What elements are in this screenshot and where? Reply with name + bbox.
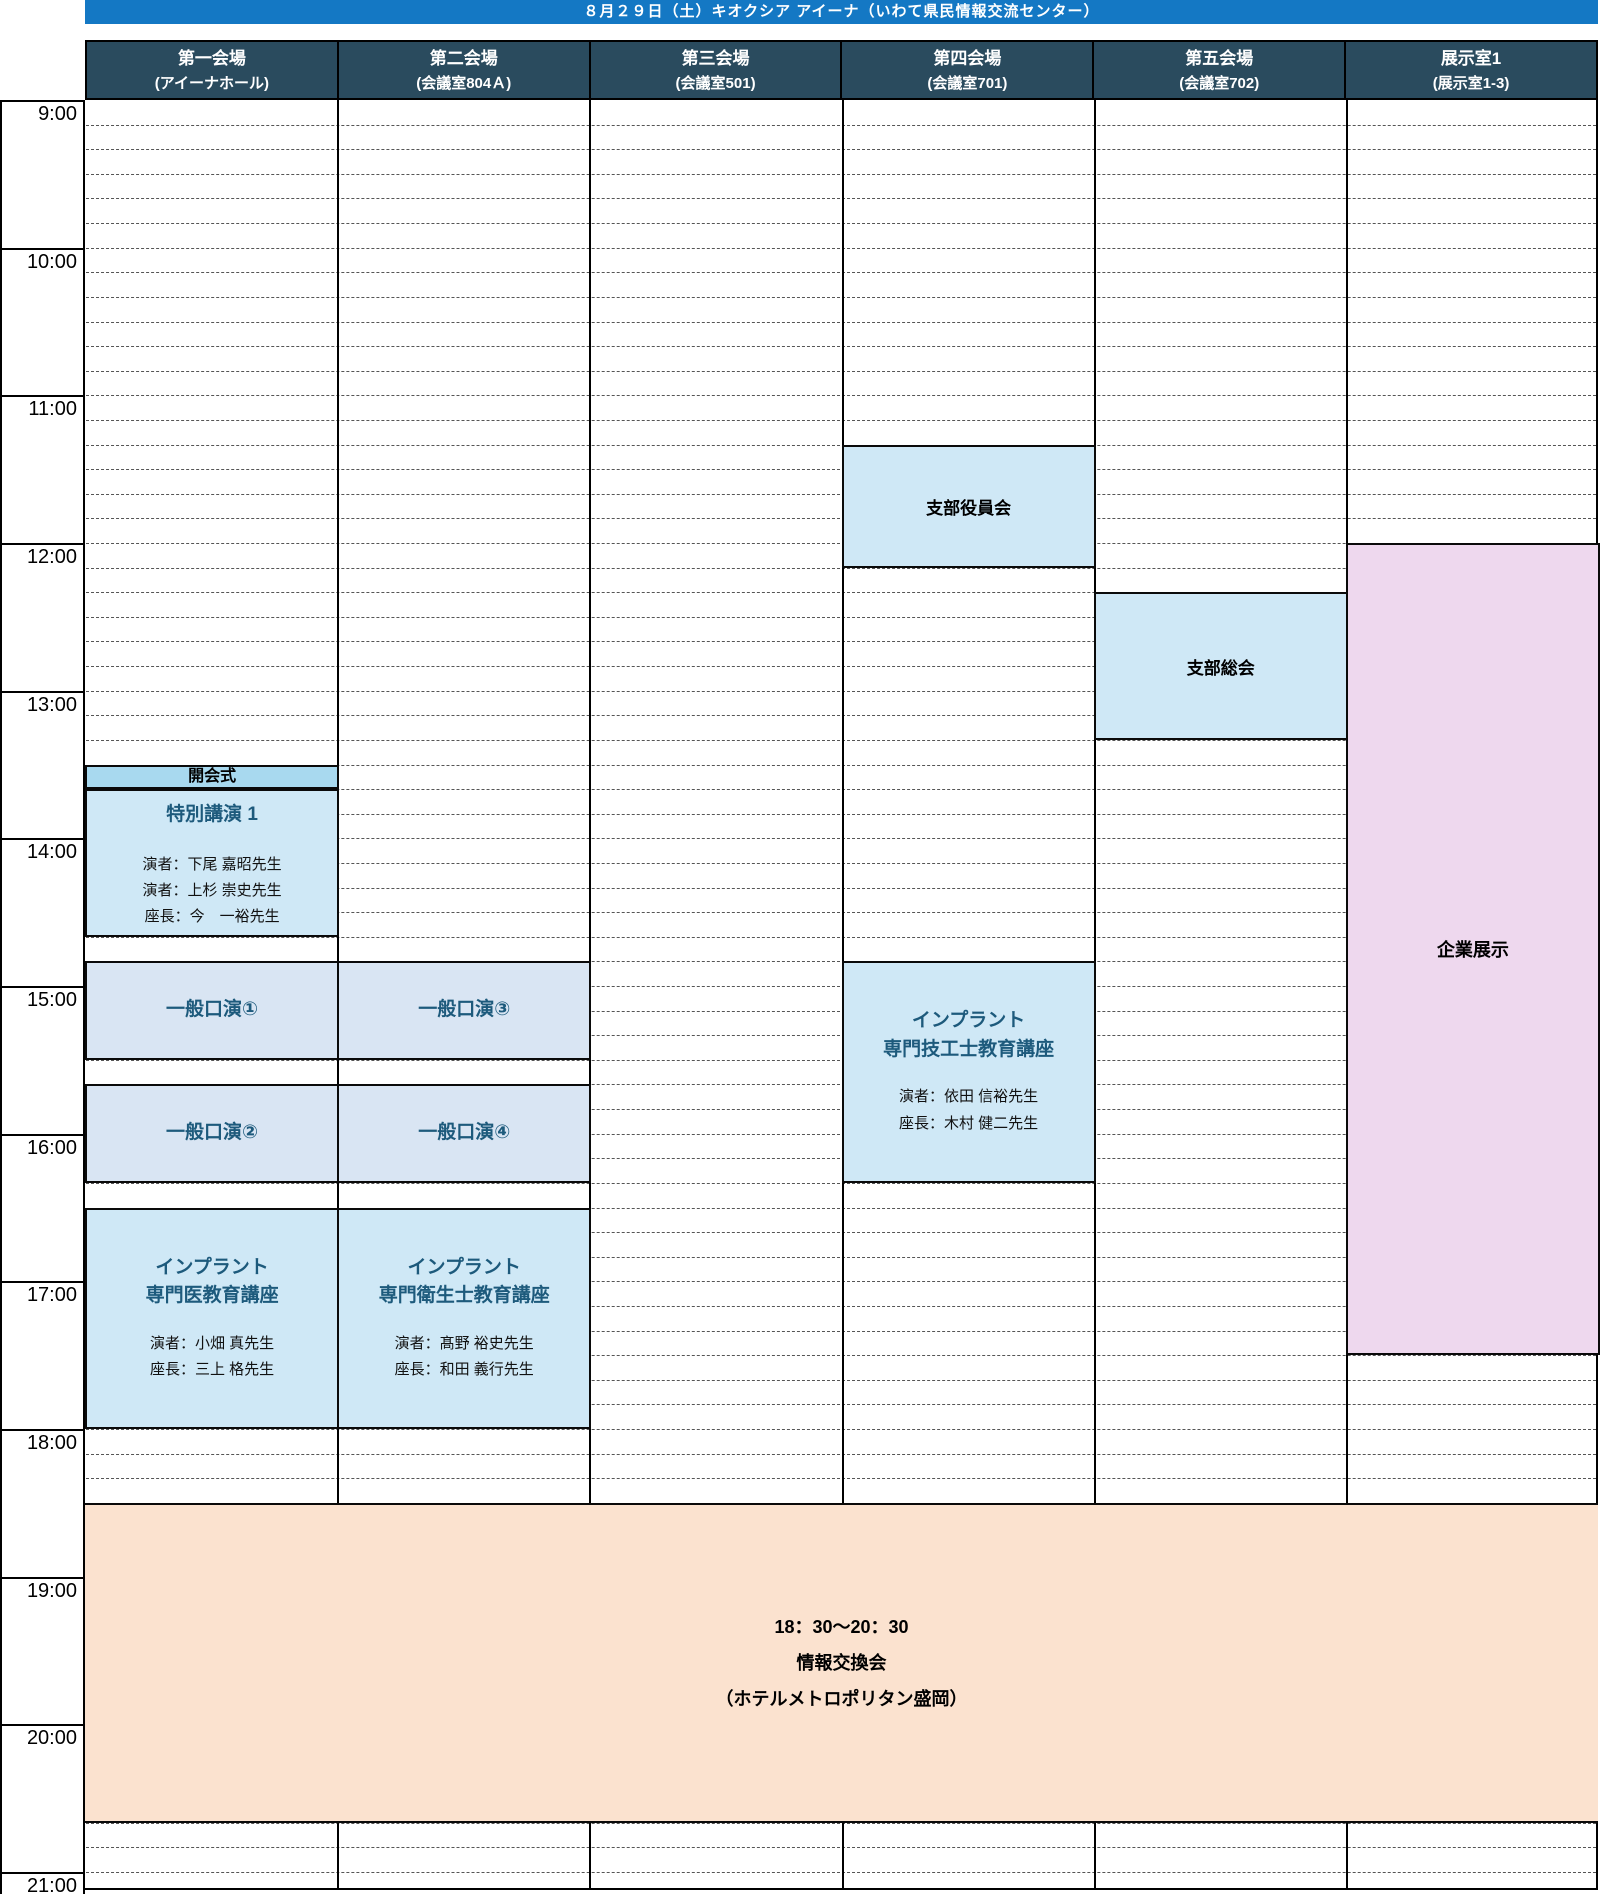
event-title-line1: インプラント bbox=[379, 1254, 550, 1283]
time-cell: 16:00 bbox=[0, 1134, 85, 1282]
time-cell: 13:00 bbox=[0, 691, 85, 839]
event-title: 一般口演② bbox=[166, 1119, 258, 1148]
venue-name: 第四会場 bbox=[842, 46, 1092, 72]
venue-room: (展示室1-3) bbox=[1346, 72, 1596, 96]
time-cell: 15:00 bbox=[0, 986, 85, 1134]
event-branch-board-meeting: 支部役員会 bbox=[842, 445, 1096, 568]
event-title: 一般口演④ bbox=[418, 1119, 510, 1148]
event-title-line2: 専門技工士教育講座 bbox=[883, 1036, 1054, 1065]
speaker-line: 演者：小畑 真先生 bbox=[150, 1331, 274, 1357]
event-title: インプラント 専門医教育講座 bbox=[146, 1254, 279, 1311]
event-title: 情報交換会 bbox=[797, 1645, 887, 1681]
venue-header-2: 第二会場 (会議室804Ａ) bbox=[339, 42, 591, 98]
venue-room: (会議室701) bbox=[842, 72, 1092, 96]
event-place: （ホテルメトロポリタン盛岡） bbox=[716, 1681, 968, 1717]
event-special-lecture-1: 特別講演 1 演者：下尾 嘉昭先生 演者：上杉 崇史先生 座長：今 一裕先生 bbox=[85, 789, 339, 937]
time-label: 19:00 bbox=[27, 1580, 77, 1602]
event-title-line1: インプラント bbox=[146, 1254, 279, 1283]
event-title: 開会式 bbox=[188, 767, 236, 787]
event-speakers: 演者：小畑 真先生 座長：三上 格先生 bbox=[150, 1331, 274, 1384]
venue-header-3: 第三会場 (会議室501) bbox=[591, 42, 843, 98]
venue-header-5: 第五会場 (会議室702) bbox=[1094, 42, 1346, 98]
time-cell: 14:00 bbox=[0, 838, 85, 986]
time-cell: 18:00 bbox=[0, 1429, 85, 1577]
event-title: 一般口演③ bbox=[418, 996, 510, 1025]
event-title: インプラント 専門衛生士教育講座 bbox=[379, 1254, 550, 1311]
venue-name: 第五会場 bbox=[1094, 46, 1344, 72]
event-title: 支部役員会 bbox=[926, 494, 1011, 519]
time-cell: 17:00 bbox=[0, 1281, 85, 1429]
time-label: 20:00 bbox=[27, 1727, 77, 1749]
event-title-line2: 専門医教育講座 bbox=[146, 1282, 279, 1311]
time-cell: 10:00 bbox=[0, 248, 85, 396]
time-label: 15:00 bbox=[27, 989, 77, 1011]
venue-header-row: 第一会場 (アイーナホール) 第二会場 (会議室804Ａ) 第三会場 (会議室5… bbox=[85, 40, 1598, 100]
time-label: 21:00 bbox=[27, 1875, 77, 1894]
time-cell: 11:00 bbox=[0, 395, 85, 543]
event-branch-general-meeting: 支部総会 bbox=[1094, 592, 1348, 740]
schedule-grid: 企業展示 18：30〜20：30 情報交換会 （ホテルメトロポリタン盛岡） 支部… bbox=[0, 100, 1600, 1894]
event-general-oral-4: 一般口演④ bbox=[337, 1084, 591, 1182]
event-title: 企業展示 bbox=[1437, 936, 1509, 962]
speaker-line: 座長：和田 義行先生 bbox=[395, 1357, 534, 1383]
time-label: 13:00 bbox=[27, 694, 77, 716]
time-cell: 12:00 bbox=[0, 543, 85, 691]
event-title: 特別講演 1 bbox=[166, 801, 258, 830]
speaker-line: 座長：今 一裕先生 bbox=[142, 904, 281, 930]
time-label: 9:00 bbox=[38, 103, 77, 125]
event-title: インプラント 専門技工士教育講座 bbox=[883, 1007, 1054, 1064]
speaker-line: 座長：木村 健二先生 bbox=[899, 1111, 1038, 1137]
event-speakers: 演者：下尾 嘉昭先生 演者：上杉 崇史先生 座長：今 一裕先生 bbox=[142, 852, 281, 931]
event-implant-specialist-course: インプラント 専門医教育講座 演者：小畑 真先生 座長：三上 格先生 bbox=[85, 1208, 339, 1430]
time-label: 12:00 bbox=[27, 546, 77, 568]
venue-room: (アイーナホール) bbox=[87, 72, 337, 96]
time-label: 11:00 bbox=[28, 398, 77, 420]
event-general-oral-3: 一般口演③ bbox=[337, 961, 591, 1059]
event-title-line1: インプラント bbox=[883, 1007, 1054, 1036]
event-social-gathering: 18：30〜20：30 情報交換会 （ホテルメトロポリタン盛岡） bbox=[85, 1503, 1598, 1823]
time-cell: 21:00 bbox=[0, 1872, 85, 1894]
event-speakers: 演者：依田 信裕先生 座長：木村 健二先生 bbox=[899, 1084, 1038, 1137]
venue-name: 展示室1 bbox=[1346, 46, 1596, 72]
venue-room: (会議室501) bbox=[591, 72, 841, 96]
event-speakers: 演者：髙野 裕史先生 座長：和田 義行先生 bbox=[395, 1331, 534, 1384]
speaker-line: 座長：三上 格先生 bbox=[150, 1357, 274, 1383]
date-venue-banner: ８月２９日（土）キオクシア アイーナ（いわて県民情報交流センター） bbox=[85, 0, 1598, 24]
time-label: 18:00 bbox=[27, 1432, 77, 1454]
time-label: 10:00 bbox=[27, 251, 77, 273]
venue-room: (会議室702) bbox=[1094, 72, 1344, 96]
speaker-line: 演者：下尾 嘉昭先生 bbox=[142, 852, 281, 878]
venue-name: 第三会場 bbox=[591, 46, 841, 72]
event-corporate-exhibition: 企業展示 bbox=[1346, 543, 1600, 1355]
venue-name: 第一会場 bbox=[87, 46, 337, 72]
venue-header-4: 第四会場 (会議室701) bbox=[842, 42, 1094, 98]
time-cell: 9:00 bbox=[0, 100, 85, 248]
venue-header-1: 第一会場 (アイーナホール) bbox=[87, 42, 339, 98]
time-label: 14:00 bbox=[27, 841, 77, 863]
event-general-oral-1: 一般口演① bbox=[85, 961, 339, 1059]
time-cell: 19:00 bbox=[0, 1577, 85, 1725]
time-cell: 20:00 bbox=[0, 1724, 85, 1872]
venue-room: (会議室804Ａ) bbox=[339, 72, 589, 96]
venue-header-6: 展示室1 (展示室1-3) bbox=[1346, 42, 1596, 98]
event-opening-ceremony: 開会式 bbox=[85, 765, 339, 790]
speaker-line: 演者：依田 信裕先生 bbox=[899, 1084, 1038, 1110]
event-title: 一般口演① bbox=[166, 996, 258, 1025]
event-title: 支部総会 bbox=[1187, 654, 1255, 679]
event-general-oral-2: 一般口演② bbox=[85, 1084, 339, 1182]
speaker-line: 演者：上杉 崇史先生 bbox=[142, 878, 281, 904]
event-title-line2: 専門衛生士教育講座 bbox=[379, 1282, 550, 1311]
event-implant-hygienist-course: インプラント 専門衛生士教育講座 演者：髙野 裕史先生 座長：和田 義行先生 bbox=[337, 1208, 591, 1430]
time-label: 16:00 bbox=[27, 1137, 77, 1159]
event-implant-technician-course: インプラント 専門技工士教育講座 演者：依田 信裕先生 座長：木村 健二先生 bbox=[842, 961, 1096, 1183]
speaker-line: 演者：髙野 裕史先生 bbox=[395, 1331, 534, 1357]
event-time-range: 18：30〜20：30 bbox=[774, 1609, 908, 1645]
conference-timetable: ８月２９日（土）キオクシア アイーナ（いわて県民情報交流センター） 第一会場 (… bbox=[0, 0, 1600, 1894]
venue-name: 第二会場 bbox=[339, 46, 589, 72]
time-label: 17:00 bbox=[27, 1284, 77, 1306]
